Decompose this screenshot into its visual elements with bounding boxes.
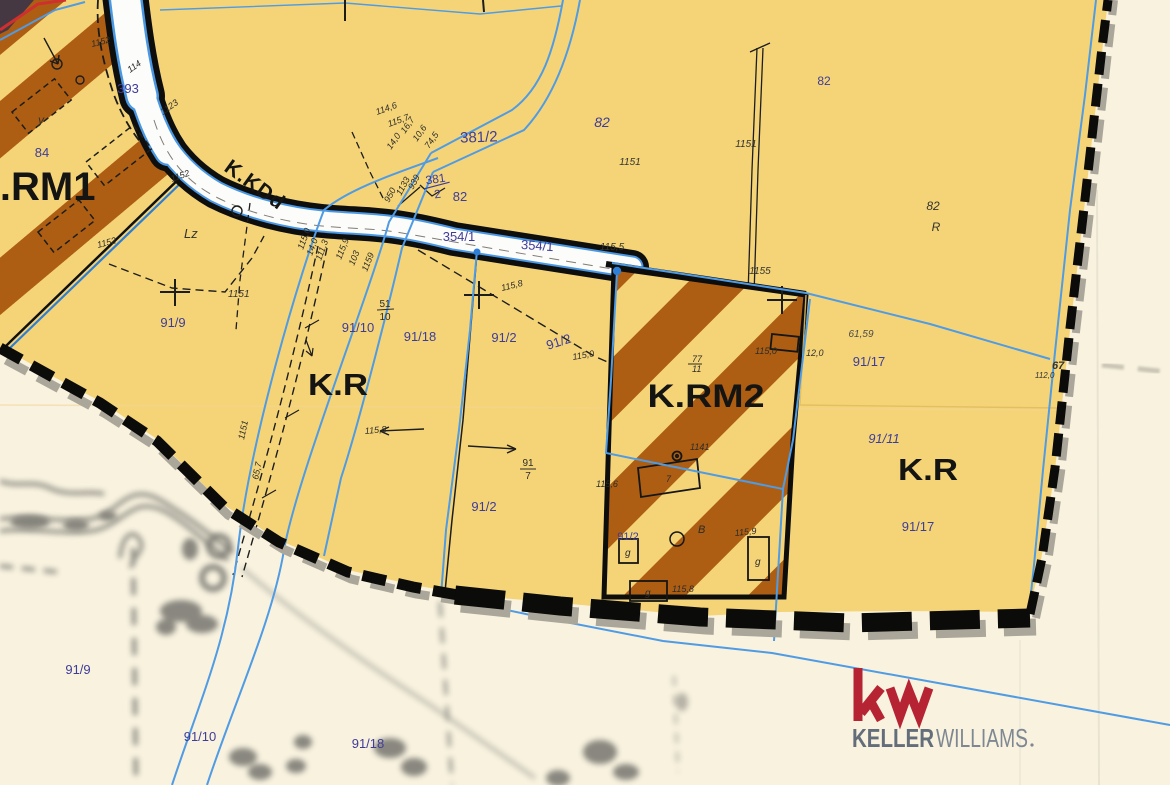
svg-text:g: g (625, 548, 631, 559)
svg-text:91/18: 91/18 (404, 329, 437, 344)
svg-text:61,59: 61,59 (848, 329, 873, 340)
svg-text:91: 91 (522, 458, 534, 469)
svg-text:g: g (645, 588, 651, 599)
svg-text:91/9: 91/9 (65, 662, 90, 677)
svg-text:91/17: 91/17 (902, 519, 935, 534)
svg-text:381/2: 381/2 (460, 128, 498, 146)
svg-text:g: g (755, 557, 761, 568)
svg-text:91/18: 91/18 (352, 736, 385, 751)
svg-text:51: 51 (379, 299, 391, 310)
svg-text:393: 393 (117, 81, 139, 96)
svg-text:115,0: 115,0 (755, 346, 777, 356)
svg-text:1155: 1155 (749, 266, 771, 277)
svg-text:K.RM2: K.RM2 (648, 378, 765, 414)
svg-text:91/11: 91/11 (868, 431, 900, 446)
svg-text:381: 381 (425, 171, 447, 188)
svg-text:10: 10 (379, 312, 391, 323)
svg-text:112,0: 112,0 (1035, 371, 1055, 380)
svg-text:11: 11 (692, 364, 701, 374)
svg-text:B: B (698, 524, 705, 536)
svg-text:1151: 1151 (619, 157, 641, 168)
svg-text:R: R (932, 220, 941, 234)
svg-text:K.R: K.R (898, 452, 958, 487)
svg-text:84: 84 (35, 145, 49, 160)
svg-text:91/10: 91/10 (342, 320, 375, 335)
svg-text:115,8: 115,8 (672, 584, 694, 594)
svg-text:115,6: 115,6 (596, 479, 618, 489)
svg-text:K.RM1: K.RM1 (0, 165, 95, 209)
svg-text:82: 82 (594, 114, 610, 130)
svg-text:91/17: 91/17 (853, 354, 886, 369)
svg-text:1151: 1151 (228, 289, 250, 300)
svg-text:WILLIAMS: WILLIAMS (936, 723, 1028, 753)
svg-text:115,8: 115,8 (364, 424, 387, 436)
svg-text:y: y (37, 113, 45, 127)
svg-text:82: 82 (453, 189, 467, 204)
svg-text:91/2: 91/2 (491, 330, 516, 345)
svg-text:82: 82 (817, 74, 831, 88)
svg-text:Lz: Lz (184, 226, 198, 241)
svg-text:115,5: 115,5 (600, 242, 625, 253)
svg-text:K.R: K.R (308, 367, 368, 402)
svg-text:91/2: 91/2 (617, 531, 638, 543)
svg-text:91/2: 91/2 (471, 499, 496, 514)
svg-text:1151: 1151 (735, 139, 757, 150)
svg-text:12,0: 12,0 (806, 348, 824, 358)
svg-text:354/1: 354/1 (443, 229, 476, 244)
svg-text:1141: 1141 (690, 442, 709, 452)
svg-text:91/9: 91/9 (160, 315, 185, 330)
svg-text:KELLER: KELLER (852, 723, 934, 753)
svg-text:82: 82 (926, 199, 940, 213)
svg-text:91/10: 91/10 (184, 729, 217, 744)
svg-text:77: 77 (692, 354, 703, 364)
svg-text:7: 7 (525, 471, 531, 482)
svg-text:354/1: 354/1 (521, 237, 555, 254)
